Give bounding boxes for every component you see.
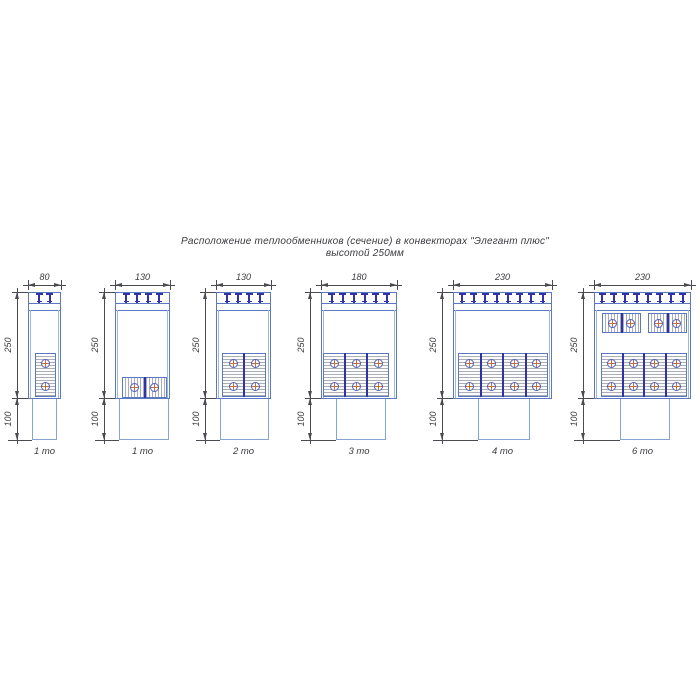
grille-clip-foot	[517, 301, 522, 302]
tube-cross-v	[612, 320, 613, 327]
tube-cross-v	[378, 383, 379, 390]
he-tube-circle	[629, 382, 638, 391]
grille-line-lower	[216, 310, 271, 311]
heat-exchanger-divider	[621, 313, 623, 333]
grille-clip-foot	[225, 301, 230, 302]
tube-cross-v	[45, 383, 46, 390]
drawing-canvas: Расположение теплообменников (сечение) в…	[0, 0, 700, 700]
grille-clip-foot	[494, 301, 499, 302]
dimension-arrowhead	[581, 398, 585, 405]
dimension-arrowhead	[203, 433, 207, 440]
he-tube-circle	[654, 319, 663, 328]
tube-cross-v	[491, 360, 492, 367]
duct-height-dimension-label: 100	[428, 406, 438, 432]
grille-line-upper	[115, 303, 170, 304]
heat-exchanger-divider	[622, 353, 624, 397]
duct	[119, 398, 169, 440]
grille-clip-foot	[600, 301, 605, 302]
dimension-line-height	[17, 288, 18, 444]
he-tube-circle	[229, 359, 238, 368]
grille-clip-foot	[384, 301, 389, 302]
dimension-arrowhead	[264, 283, 271, 287]
unit-count-label: 1 то	[105, 446, 180, 457]
unit-count-label: 6 то	[584, 446, 700, 457]
duct	[220, 398, 269, 440]
inner-wall-right	[268, 310, 269, 398]
dimension-arrowhead	[545, 283, 552, 287]
grille-clip-foot	[157, 301, 162, 302]
grille-clip-foot	[351, 301, 356, 302]
grille-clip-foot	[236, 301, 241, 302]
tube-cross-v	[45, 360, 46, 367]
dimension-arrowhead	[203, 292, 207, 299]
grille-line-lower	[115, 310, 170, 311]
tube-cross-v	[633, 383, 634, 390]
he-tube-circle	[251, 359, 260, 368]
dimension-arrowhead	[321, 283, 328, 287]
tube-cross-v	[134, 384, 135, 391]
grille-line-lower	[453, 310, 552, 311]
tube-cross-v	[233, 383, 234, 390]
tube-cross-v	[633, 360, 634, 367]
tube-cross-v	[654, 360, 655, 367]
heat-exchanger-divider	[525, 353, 527, 397]
dimension-line-height	[583, 288, 584, 444]
dimension-arrowhead	[308, 391, 312, 398]
dimension-arrowhead	[440, 391, 444, 398]
tube-cross-v	[469, 360, 470, 367]
dimension-line-width	[448, 285, 557, 286]
grille-line-upper	[321, 303, 397, 304]
dimension-arrowhead	[581, 391, 585, 398]
grille-line-lower	[594, 310, 691, 311]
he-tube-circle	[629, 359, 638, 368]
tube-cross-v	[676, 360, 677, 367]
dimension-arrowhead	[594, 283, 601, 287]
drawing-title-line1: Расположение теплообменников (сечение) в…	[120, 236, 610, 247]
dimension-arrowhead	[308, 292, 312, 299]
grille-line-lower	[28, 310, 61, 311]
height-dimension-label: 250	[296, 332, 306, 358]
duct-height-dimension-label: 100	[90, 406, 100, 432]
extension-line	[196, 440, 220, 441]
inner-wall-left	[117, 310, 118, 398]
he-tube-circle	[672, 382, 681, 391]
dimension-arrowhead	[581, 292, 585, 299]
grille-clip-foot	[460, 301, 465, 302]
width-dimension-label: 230	[453, 272, 552, 282]
duct	[32, 398, 57, 440]
dimension-line-width	[589, 285, 696, 286]
drawing-title-line2: высотой 250мм	[120, 248, 610, 259]
dimension-arrowhead	[163, 283, 170, 287]
duct-height-dimension-label: 100	[296, 406, 306, 432]
unit-count-label: 1 то	[18, 446, 71, 457]
inner-wall-right	[58, 310, 59, 398]
heat-exchanger-divider	[502, 353, 504, 397]
grille-clip-foot	[340, 301, 345, 302]
tube-cross-v	[334, 383, 335, 390]
he-tube-circle	[672, 319, 681, 328]
duct-height-dimension-label: 100	[569, 406, 579, 432]
inner-wall-left	[455, 310, 456, 398]
dimension-arrowhead	[390, 283, 397, 287]
he-tube-circle	[41, 382, 50, 391]
tube-cross-v	[334, 360, 335, 367]
width-dimension-label: 130	[216, 272, 271, 282]
dimension-line-height	[205, 288, 206, 444]
grille-clip-foot	[669, 301, 674, 302]
grille-clip-foot	[135, 301, 140, 302]
dimension-arrowhead	[308, 398, 312, 405]
height-dimension-label: 250	[191, 332, 201, 358]
he-tube-circle	[330, 359, 339, 368]
dimension-arrowhead	[15, 398, 19, 405]
dimension-arrowhead	[203, 391, 207, 398]
height-dimension-label: 250	[3, 332, 13, 358]
tube-cross-v	[536, 383, 537, 390]
tube-cross-v	[611, 360, 612, 367]
heat-exchanger-divider	[665, 353, 667, 397]
duct	[336, 398, 386, 440]
heat-exchanger-divider	[243, 353, 245, 397]
he-tube-circle	[41, 359, 50, 368]
duct-height-dimension-label: 100	[3, 406, 13, 432]
dimension-arrowhead	[440, 433, 444, 440]
grille-clip-foot	[529, 301, 534, 302]
dimension-arrowhead	[15, 433, 19, 440]
grille-clip-foot	[611, 301, 616, 302]
tube-cross-v	[233, 360, 234, 367]
extension-line	[8, 440, 32, 441]
inner-wall-left	[218, 310, 219, 398]
heat-exchanger-divider	[480, 353, 482, 397]
extension-line	[301, 440, 336, 441]
grille-clip-foot	[634, 301, 639, 302]
he-tube-circle	[130, 383, 139, 392]
height-dimension-label: 250	[90, 332, 100, 358]
dimension-arrowhead	[54, 283, 61, 287]
tube-cross-v	[630, 320, 631, 327]
height-dimension-label: 250	[569, 332, 579, 358]
grille-clip-foot	[247, 301, 252, 302]
width-dimension-label: 180	[321, 272, 397, 282]
unit-count-label: 4 то	[443, 446, 562, 457]
tube-cross-v	[491, 383, 492, 390]
tube-cross-v	[255, 360, 256, 367]
grille-clip-foot	[124, 301, 129, 302]
extension-line	[95, 440, 119, 441]
dimension-arrowhead	[15, 292, 19, 299]
heat-exchanger-divider	[667, 313, 669, 333]
dimension-arrowhead	[102, 292, 106, 299]
grille-line-upper	[28, 303, 61, 304]
he-tube-circle	[352, 382, 361, 391]
grille-clip-foot	[657, 301, 662, 302]
extension-line	[574, 440, 620, 441]
grille-clip-foot	[362, 301, 367, 302]
heat-exchanger-divider	[144, 377, 146, 398]
width-dimension-label: 230	[594, 272, 691, 282]
grille-clip-foot	[646, 301, 651, 302]
he-tube-circle	[229, 382, 238, 391]
tube-cross-v	[255, 383, 256, 390]
unit-count-label: 2 то	[206, 446, 281, 457]
inner-wall-right	[688, 310, 689, 398]
tube-cross-v	[514, 383, 515, 390]
grille-clip-foot	[146, 301, 151, 302]
dimension-line-height	[442, 288, 443, 444]
dimension-arrowhead	[102, 433, 106, 440]
he-tube-circle	[608, 319, 617, 328]
grille-clip-foot	[37, 301, 42, 302]
grille-line-lower	[321, 310, 397, 311]
grille-line-upper	[216, 303, 271, 304]
duct	[478, 398, 530, 440]
tube-cross-v	[536, 360, 537, 367]
he-tube-circle	[374, 382, 383, 391]
inner-wall-left	[596, 310, 597, 398]
tube-cross-v	[658, 320, 659, 327]
grille-clip-foot	[373, 301, 378, 302]
tube-cross-v	[378, 360, 379, 367]
he-tube-circle	[374, 359, 383, 368]
inner-wall-right	[167, 310, 168, 398]
tube-cross-v	[356, 383, 357, 390]
extension-line	[433, 440, 478, 441]
tube-cross-v	[676, 320, 677, 327]
duct-height-dimension-label: 100	[191, 406, 201, 432]
dimension-arrowhead	[28, 283, 35, 287]
dimension-arrowhead	[115, 283, 122, 287]
grille-clip-foot	[258, 301, 263, 302]
inner-wall-left	[30, 310, 31, 398]
he-tube-circle	[626, 319, 635, 328]
he-tube-circle	[330, 382, 339, 391]
grille-clip-foot	[623, 301, 628, 302]
duct	[620, 398, 670, 440]
grille-clip-foot	[506, 301, 511, 302]
dimension-arrowhead	[102, 391, 106, 398]
width-dimension-label: 80	[28, 272, 61, 282]
dimension-arrowhead	[453, 283, 460, 287]
tube-cross-v	[514, 360, 515, 367]
tube-cross-v	[654, 383, 655, 390]
dimension-arrowhead	[440, 292, 444, 299]
grille-clip-foot	[471, 301, 476, 302]
he-tube-circle	[251, 382, 260, 391]
dimension-line-height	[104, 288, 105, 444]
grille-line-upper	[594, 303, 691, 304]
dimension-arrowhead	[581, 433, 585, 440]
heat-exchanger-divider	[366, 353, 368, 397]
he-tube-circle	[510, 382, 519, 391]
grille-line-upper	[453, 303, 552, 304]
dimension-arrowhead	[102, 398, 106, 405]
he-tube-circle	[465, 382, 474, 391]
he-tube-circle	[510, 359, 519, 368]
he-tube-circle	[352, 359, 361, 368]
dimension-arrowhead	[684, 283, 691, 287]
tube-cross-v	[676, 383, 677, 390]
inner-wall-right	[394, 310, 395, 398]
grille-clip-foot	[680, 301, 685, 302]
unit-count-label: 3 то	[311, 446, 407, 457]
dimension-arrowhead	[440, 398, 444, 405]
inner-wall-right	[549, 310, 550, 398]
tube-cross-v	[356, 360, 357, 367]
grille-clip-foot	[47, 301, 52, 302]
grille-clip-foot	[329, 301, 334, 302]
tube-cross-v	[469, 383, 470, 390]
tube-cross-v	[154, 384, 155, 391]
dimension-arrowhead	[308, 433, 312, 440]
he-tube-circle	[672, 359, 681, 368]
grille-clip-foot	[540, 301, 545, 302]
heat-exchanger-divider	[643, 353, 645, 397]
tube-cross-v	[611, 383, 612, 390]
he-tube-circle	[465, 359, 474, 368]
dimension-line-height	[310, 288, 311, 444]
dimension-arrowhead	[216, 283, 223, 287]
width-dimension-label: 130	[115, 272, 170, 282]
grille-clip-foot	[483, 301, 488, 302]
dimension-arrowhead	[203, 398, 207, 405]
heat-exchanger-divider	[344, 353, 346, 397]
height-dimension-label: 250	[428, 332, 438, 358]
dimension-arrowhead	[15, 391, 19, 398]
